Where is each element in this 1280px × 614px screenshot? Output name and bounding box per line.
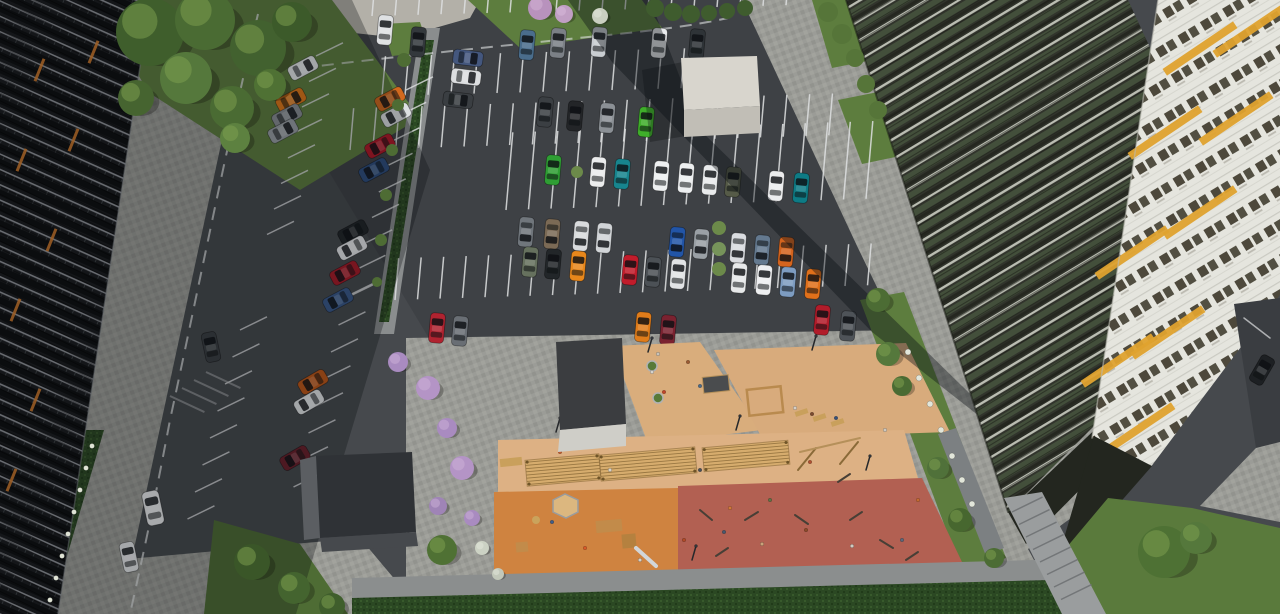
top-bush: [701, 5, 717, 21]
car: [652, 160, 670, 191]
utility-box-roof: [681, 56, 760, 110]
low-building-roof: [316, 452, 416, 538]
sandbox: [553, 494, 578, 518]
median-bush: [386, 144, 398, 156]
row-shrub: [712, 262, 726, 276]
median-bush: [392, 99, 404, 111]
car: [613, 158, 631, 189]
car: [569, 250, 587, 281]
car: [543, 218, 561, 249]
car: [669, 258, 687, 289]
top-bush: [664, 3, 682, 21]
car: [692, 228, 710, 259]
car: [450, 68, 482, 87]
car: [688, 28, 706, 59]
car: [755, 264, 773, 295]
hedge-bush: [832, 24, 852, 44]
row-shrub: [712, 242, 726, 256]
car: [813, 304, 831, 335]
hedge-bush: [846, 49, 864, 67]
car: [544, 248, 562, 279]
car: [598, 102, 616, 133]
car: [428, 312, 446, 343]
top-bush: [682, 5, 700, 23]
play-structure: [596, 519, 623, 533]
car: [792, 172, 810, 203]
canopy-small: [702, 375, 730, 394]
pavilion-roof: [556, 338, 626, 430]
car: [452, 49, 484, 68]
car: [677, 162, 695, 193]
car: [644, 256, 662, 287]
car: [753, 234, 771, 265]
top-bush: [737, 0, 753, 16]
play-carousel: [532, 516, 540, 524]
aerial-render-stage: [0, 0, 1280, 614]
car: [779, 266, 797, 297]
car: [549, 27, 567, 58]
car: [767, 170, 785, 201]
row-shrub: [571, 166, 583, 178]
car: [409, 26, 427, 57]
planter: [647, 361, 657, 371]
utility-box-front: [684, 106, 760, 137]
row-shrub: [712, 221, 726, 235]
hedge-bush: [818, 2, 838, 22]
planter: [653, 393, 663, 403]
play-tower: [621, 533, 636, 548]
car: [518, 29, 536, 60]
car: [730, 262, 748, 293]
car: [536, 96, 554, 127]
car: [659, 314, 677, 345]
car: [729, 232, 747, 263]
play-house: [516, 541, 529, 552]
median-bush: [380, 189, 392, 201]
car: [621, 254, 639, 285]
median-bush: [375, 234, 387, 246]
aerial-scene-svg: [0, 0, 1280, 614]
car: [566, 100, 584, 131]
hedge-bush: [869, 101, 887, 119]
car: [839, 310, 857, 341]
hedge-bush: [857, 75, 875, 93]
car: [451, 315, 469, 346]
median-bush: [397, 53, 411, 67]
median-bush: [372, 277, 382, 287]
car: [595, 222, 613, 253]
car: [376, 14, 394, 45]
car: [442, 91, 474, 110]
car: [544, 154, 562, 185]
car: [572, 220, 590, 251]
car: [634, 311, 652, 342]
car: [517, 216, 535, 247]
top-bush: [719, 3, 735, 19]
car: [668, 226, 686, 257]
car: [521, 246, 539, 277]
car: [589, 156, 607, 187]
